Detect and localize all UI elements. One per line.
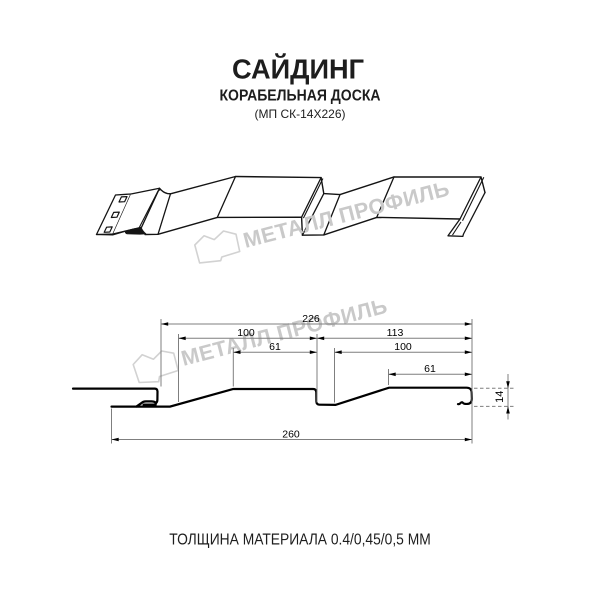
svg-text:113: 113 [387, 327, 404, 339]
svg-text:260: 260 [282, 428, 300, 440]
svg-text:(МП СК-14Х226): (МП СК-14Х226) [255, 107, 346, 121]
svg-text:ТОЛЩИНА МАТЕРИАЛА 0.4/0,45/0,5: ТОЛЩИНА МАТЕРИАЛА 0.4/0,45/0,5 ММ [169, 532, 431, 549]
svg-text:61: 61 [424, 363, 436, 375]
svg-text:САЙДИНГ: САЙДИНГ [232, 54, 364, 85]
svg-text:61: 61 [269, 341, 281, 353]
svg-text:100: 100 [394, 341, 412, 353]
svg-text:226: 226 [302, 313, 320, 325]
svg-text:14: 14 [494, 391, 506, 403]
svg-text:КОРАБЕЛЬНАЯ ДОСКА: КОРАБЕЛЬНАЯ ДОСКА [220, 88, 381, 105]
svg-text:100: 100 [237, 327, 255, 339]
